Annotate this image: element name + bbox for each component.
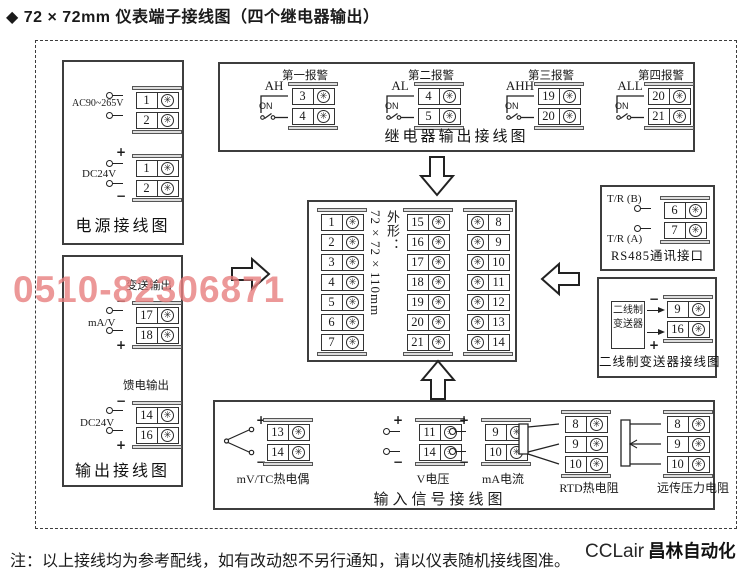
- on-label: ON: [505, 101, 519, 111]
- terminal-row: 6✳: [664, 202, 707, 219]
- screw-icon: ✳: [587, 437, 607, 452]
- terminal-number: 4: [293, 109, 314, 124]
- wire-stub-icon: [112, 330, 123, 331]
- pressure-resistor-icon: [617, 412, 661, 472]
- terminal-number: 4: [322, 275, 343, 290]
- terminal-number: 19: [539, 89, 560, 104]
- wire-stub-icon: [389, 451, 400, 452]
- terminal-number: 16: [668, 322, 689, 337]
- minus-sign: −: [649, 293, 659, 305]
- tc-caption: mV/TC热电偶: [217, 470, 329, 487]
- terminal-row: 19✳: [538, 88, 581, 105]
- screw-icon: ✳: [158, 113, 178, 128]
- terminal-row: 13✳: [467, 314, 510, 331]
- screw-icon: ✳: [158, 428, 178, 443]
- terminal-row: 4✳: [418, 88, 461, 105]
- terminal-number: 14: [137, 408, 158, 423]
- relay-output-box: 第一报警 AH ON 3✳ 4✳ 第二报警 AL ON 4✳ 5✳ 第三报警 A…: [218, 62, 695, 152]
- terminal-number: 19: [408, 295, 429, 310]
- terminal-cap: [132, 86, 182, 90]
- screw-icon: ✳: [468, 295, 488, 310]
- volt-caption: V电压: [395, 470, 471, 487]
- wire-stub-icon: [640, 228, 651, 229]
- terminal-number: 5: [322, 295, 343, 310]
- watermark-phone: 0510-82306871: [13, 269, 285, 311]
- terminal-row: 18✳: [136, 327, 179, 344]
- power-wiring-box: AC90~265V 1✳ 2✳ + DC24V − 1✳ 2✳ 电源接线图: [62, 60, 184, 245]
- terminal-block-volt: 11✳ 14✳: [415, 418, 465, 466]
- terminal-block-pressure: 8✳ 9✳ 10✳: [663, 410, 713, 478]
- terminal-row: 4✳: [321, 274, 364, 291]
- terminal-number: 3: [293, 89, 314, 104]
- screw-icon: ✳: [343, 315, 363, 330]
- ma-caption: mA电流: [461, 470, 545, 487]
- terminal-row: 14✳: [136, 407, 179, 424]
- terminal-block-ac: 1✳ 2✳: [132, 86, 182, 134]
- screw-icon: ✳: [587, 457, 607, 472]
- terminal-row: 2✳: [136, 112, 179, 129]
- screw-icon: ✳: [560, 109, 580, 124]
- terminal-cap: [415, 462, 465, 466]
- terminal-strip-left: 1✳ 2✳ 3✳ 4✳ 5✳ 6✳ 7✳: [317, 208, 367, 356]
- terminal-cap: [663, 295, 713, 299]
- terminal-row: 5✳: [418, 108, 461, 125]
- terminal-row: 21✳: [648, 108, 691, 125]
- terminal-block-rtd: 8✳ 9✳ 10✳: [561, 410, 611, 478]
- wire-arrow-icon: [647, 310, 658, 311]
- wiring-diagram-page: ◆ 72 × 72mm 仪表端子接线图（四个继电器输出） AC90~265V 1…: [0, 0, 750, 579]
- plus-sign: +: [116, 439, 126, 451]
- terminal-number: 2: [137, 113, 158, 128]
- terminal-strip-middle: 15✳ 16✳ 17✳ 18✳ 19✳ 20✳ 21✳: [403, 208, 453, 356]
- terminal-number: 5: [419, 109, 440, 124]
- screw-icon: ✳: [158, 161, 178, 176]
- dc-voltage-label: DC24V: [82, 168, 116, 180]
- terminal-number: 10: [486, 445, 507, 460]
- screw-icon: ✳: [314, 89, 334, 104]
- terminal-number: 18: [408, 275, 429, 290]
- terminal-number: 8: [668, 417, 689, 432]
- screw-icon: ✳: [429, 235, 449, 250]
- screw-icon: ✳: [343, 255, 363, 270]
- terminal-row: 7✳: [321, 334, 364, 351]
- screw-icon: ✳: [468, 215, 488, 230]
- terminal-row: 16✳: [136, 427, 179, 444]
- footnote-note: 注：以上接线均为参考配线，如有改动恕不另行通知，请以仪表随机接线图准。: [10, 547, 570, 571]
- terminal-number: 15: [408, 215, 429, 230]
- terminal-row: 8✳: [565, 416, 608, 433]
- terminal-row: 10✳: [667, 456, 710, 473]
- terminal-row: 3✳: [292, 88, 335, 105]
- screw-icon: ✳: [289, 445, 309, 460]
- terminal-row: 1✳: [321, 214, 364, 231]
- terminal-number: 4: [419, 89, 440, 104]
- terminal-row: 8✳: [667, 416, 710, 433]
- plus-sign: +: [393, 414, 403, 426]
- terminal-row: 2✳: [321, 234, 364, 251]
- terminal-block-rs485: 6✳ 7✳: [660, 196, 710, 244]
- rs485-line-a-label: T/R (A): [607, 233, 642, 245]
- terminal-number: 10: [668, 457, 689, 472]
- wire-stub-icon: [112, 95, 123, 96]
- screw-icon: ✳: [343, 335, 363, 350]
- transmitter-device-box: 二线制变送器: [611, 301, 645, 349]
- plus-sign: +: [116, 339, 126, 351]
- wire-stub-icon: [112, 410, 123, 411]
- terminal-block-dc: 1✳ 2✳: [132, 154, 182, 202]
- terminal-cap: [132, 445, 182, 449]
- screw-icon: ✳: [689, 322, 709, 337]
- page-title: ◆ 72 × 72mm 仪表端子接线图（四个继电器输出）: [6, 3, 379, 27]
- screw-icon: ✳: [670, 109, 690, 124]
- screw-icon: ✳: [289, 425, 309, 440]
- terminal-number: 17: [408, 255, 429, 270]
- terminal-number: 1: [322, 215, 343, 230]
- terminal-cap: [561, 410, 611, 414]
- screw-icon: ✳: [560, 89, 580, 104]
- on-label: ON: [615, 101, 629, 111]
- terminal-number: 14: [268, 445, 289, 460]
- screw-icon: ✳: [314, 109, 334, 124]
- terminal-number: 16: [137, 428, 158, 443]
- terminal-cap: [414, 82, 464, 86]
- terminal-row: 7✳: [664, 222, 707, 239]
- plus-sign: +: [459, 414, 469, 426]
- terminal-cap: [132, 154, 182, 158]
- terminal-cap: [317, 352, 367, 356]
- terminal-number: 11: [420, 425, 441, 440]
- two-wire-transmitter-box: 二线制变送器 − + 9✳ 16✳ 二线制变送器接线图: [597, 277, 717, 378]
- terminal-number: 13: [488, 315, 509, 330]
- terminal-row: 21✳: [407, 334, 450, 351]
- terminal-row: 9✳: [667, 301, 710, 318]
- relay-box-title: 继电器输出接线图: [220, 125, 693, 146]
- screw-icon: ✳: [158, 328, 178, 343]
- terminal-number: 8: [488, 215, 509, 230]
- terminal-number: 1: [137, 93, 158, 108]
- rs485-box-title: RS485通讯接口: [602, 245, 713, 264]
- terminal-number: 21: [649, 109, 670, 124]
- screw-icon: ✳: [689, 417, 709, 432]
- plus-sign: +: [649, 339, 659, 351]
- terminal-number: 21: [408, 335, 429, 350]
- twowire-box-title: 二线制变送器接线图: [599, 351, 715, 370]
- terminal-row: 1✳: [136, 160, 179, 177]
- terminal-row: 11✳: [467, 274, 510, 291]
- terminal-cap: [663, 339, 713, 343]
- screw-icon: ✳: [343, 275, 363, 290]
- screw-icon: ✳: [343, 235, 363, 250]
- output-box-title: 输出接线图: [64, 457, 181, 481]
- terminal-row: 9✳: [565, 436, 608, 453]
- flow-arrow-left-icon: [540, 261, 580, 297]
- terminal-number: 16: [408, 235, 429, 250]
- wire-stub-icon: [112, 163, 123, 164]
- terminal-cap: [463, 208, 513, 212]
- wire-stub-icon: [112, 115, 123, 116]
- terminal-number: 18: [137, 328, 158, 343]
- terminal-cap: [660, 196, 710, 200]
- terminal-number: 6: [322, 315, 343, 330]
- screw-icon: ✳: [429, 315, 449, 330]
- wire-stub-icon: [455, 431, 466, 432]
- dimension-label: 外形：72×72×110mm: [367, 210, 402, 358]
- terminal-cap: [415, 418, 465, 422]
- on-label: ON: [385, 101, 399, 111]
- terminal-block-alarm1: 3✳ 4✳: [288, 82, 338, 130]
- screw-icon: ✳: [587, 417, 607, 432]
- ac-voltage-label: AC90~265V: [72, 98, 130, 109]
- wire-stub-icon: [112, 183, 123, 184]
- wire-stub-icon: [455, 451, 466, 452]
- terminal-row: 16✳: [407, 234, 450, 251]
- terminal-number: 2: [322, 235, 343, 250]
- terminal-number: 10: [566, 457, 587, 472]
- screw-icon: ✳: [468, 235, 488, 250]
- terminal-number: 9: [668, 302, 689, 317]
- terminal-number: 6: [665, 203, 686, 218]
- plus-sign: +: [116, 146, 126, 158]
- wire-stub-icon: [389, 431, 400, 432]
- terminal-cap: [561, 474, 611, 478]
- screw-icon: ✳: [429, 275, 449, 290]
- terminal-cap: [263, 418, 313, 422]
- terminal-number: 9: [668, 437, 689, 452]
- feed-output-caption: 馈电输出: [114, 377, 178, 393]
- flow-arrow-up-icon: [421, 360, 455, 400]
- minus-sign: −: [459, 456, 469, 468]
- screw-icon: ✳: [468, 335, 488, 350]
- screw-icon: ✳: [429, 335, 449, 350]
- terminal-number: 11: [488, 275, 509, 290]
- terminal-cap: [663, 410, 713, 414]
- screw-icon: ✳: [686, 223, 706, 238]
- terminal-row: 14✳: [467, 334, 510, 351]
- terminal-number: 9: [488, 235, 509, 250]
- terminal-number: 20: [539, 109, 560, 124]
- terminal-row: 10✳: [467, 254, 510, 271]
- terminal-number: 3: [322, 255, 343, 270]
- terminal-row: 17✳: [407, 254, 450, 271]
- terminal-cap: [660, 240, 710, 244]
- terminal-cap: [403, 208, 453, 212]
- terminal-number: 20: [649, 89, 670, 104]
- terminal-row: 9✳: [467, 234, 510, 251]
- terminal-row: 14✳: [267, 444, 310, 461]
- terminal-cap: [317, 208, 367, 212]
- terminal-row: 15✳: [407, 214, 450, 231]
- screw-icon: ✳: [670, 89, 690, 104]
- terminal-number: 8: [566, 417, 587, 432]
- terminal-cap: [263, 462, 313, 466]
- minus-sign: −: [393, 456, 403, 468]
- screw-icon: ✳: [686, 203, 706, 218]
- terminal-row: 20✳: [538, 108, 581, 125]
- terminal-row: 9✳: [667, 436, 710, 453]
- on-label: ON: [259, 101, 273, 111]
- terminal-row: 16✳: [667, 321, 710, 338]
- terminal-cap: [403, 352, 453, 356]
- input-signal-box: + − 13✳ 14✳ mV/TC热电偶 + − 11✳ 14✳ V电压 + −…: [213, 400, 715, 510]
- screw-icon: ✳: [158, 93, 178, 108]
- terminal-number: 2: [137, 181, 158, 196]
- power-box-title: 电源接线图: [64, 212, 182, 236]
- terminal-row: 18✳: [407, 274, 450, 291]
- pressure-caption: 远传压力电阻: [633, 479, 750, 496]
- terminal-row: 4✳: [292, 108, 335, 125]
- terminal-cap: [132, 130, 182, 134]
- terminal-cap: [534, 82, 584, 86]
- terminal-cap: [132, 401, 182, 405]
- terminal-row: 12✳: [467, 294, 510, 311]
- terminal-number: 20: [408, 315, 429, 330]
- wire-stub-icon: [112, 430, 123, 431]
- terminal-cap: [288, 82, 338, 86]
- terminal-number: 13: [268, 425, 289, 440]
- terminal-number: 7: [665, 223, 686, 238]
- terminal-row: 1✳: [136, 92, 179, 109]
- terminal-number: 1: [137, 161, 158, 176]
- terminal-block-alarm2: 4✳ 5✳: [414, 82, 464, 130]
- screw-icon: ✳: [158, 408, 178, 423]
- screw-icon: ✳: [343, 295, 363, 310]
- terminal-block-twowire: 9✳ 16✳: [663, 295, 713, 343]
- terminal-row: 8✳: [467, 214, 510, 231]
- terminal-block-feed: 14✳ 16✳: [132, 401, 182, 449]
- minus-sign: −: [116, 395, 126, 407]
- terminal-cap: [663, 474, 713, 478]
- terminal-number: 9: [566, 437, 587, 452]
- screw-icon: ✳: [468, 275, 488, 290]
- screw-icon: ✳: [689, 437, 709, 452]
- screw-icon: ✳: [158, 181, 178, 196]
- terminal-number: 14: [488, 335, 509, 350]
- rs485-line-b-label: T/R (B): [607, 193, 642, 205]
- terminal-number: 12: [488, 295, 509, 310]
- terminal-cap: [132, 198, 182, 202]
- screw-icon: ✳: [440, 89, 460, 104]
- minus-sign: −: [116, 190, 126, 202]
- screw-icon: ✳: [429, 215, 449, 230]
- screw-icon: ✳: [429, 295, 449, 310]
- terminal-row: 5✳: [321, 294, 364, 311]
- terminal-row: 13✳: [267, 424, 310, 441]
- screw-icon: ✳: [343, 215, 363, 230]
- terminal-row: 10✳: [565, 456, 608, 473]
- terminal-strip-right: 8✳ 9✳ 10✳ 11✳ 12✳ 13✳ 14✳: [463, 208, 513, 356]
- terminal-cap: [644, 82, 694, 86]
- wire-arrow-icon: [647, 332, 658, 333]
- terminal-block-alarm3: 19✳ 20✳: [534, 82, 584, 130]
- terminal-cap: [132, 345, 182, 349]
- terminal-number: 7: [322, 335, 343, 350]
- flow-arrow-down-icon: [420, 156, 454, 196]
- brand-logo: CCLair昌林自动化: [585, 538, 736, 563]
- terminal-row: 6✳: [321, 314, 364, 331]
- screw-icon: ✳: [468, 315, 488, 330]
- terminal-number: 14: [420, 445, 441, 460]
- rs485-box: T/R (B) 6✳ 7✳ T/R (A) RS485通讯接口: [600, 185, 715, 271]
- terminal-row: 2✳: [136, 180, 179, 197]
- screw-icon: ✳: [689, 457, 709, 472]
- terminal-row: 20✳: [648, 88, 691, 105]
- brand-logo-name: 昌林自动化: [648, 541, 736, 561]
- wire-stub-icon: [640, 208, 651, 209]
- terminal-cap: [463, 352, 513, 356]
- terminal-row: 3✳: [321, 254, 364, 271]
- terminal-number: 10: [488, 255, 509, 270]
- terminal-number: 9: [486, 425, 507, 440]
- screw-icon: ✳: [468, 255, 488, 270]
- terminal-row: 20✳: [407, 314, 450, 331]
- screw-icon: ✳: [689, 302, 709, 317]
- brand-logo-prefix: CCLair: [585, 541, 644, 562]
- rtd-resistor-icon: [515, 412, 559, 472]
- terminal-row: 19✳: [407, 294, 450, 311]
- screw-icon: ✳: [440, 109, 460, 124]
- terminal-block-alarm4: 20✳ 21✳: [644, 82, 694, 130]
- terminal-block-tc: 13✳ 14✳: [263, 418, 313, 466]
- screw-icon: ✳: [429, 255, 449, 270]
- meter-terminal-box: 1✳ 2✳ 3✳ 4✳ 5✳ 6✳ 7✳ 外形：72×72×110mm 15✳ …: [307, 200, 517, 362]
- input-box-title: 输入信号接线图: [310, 488, 570, 509]
